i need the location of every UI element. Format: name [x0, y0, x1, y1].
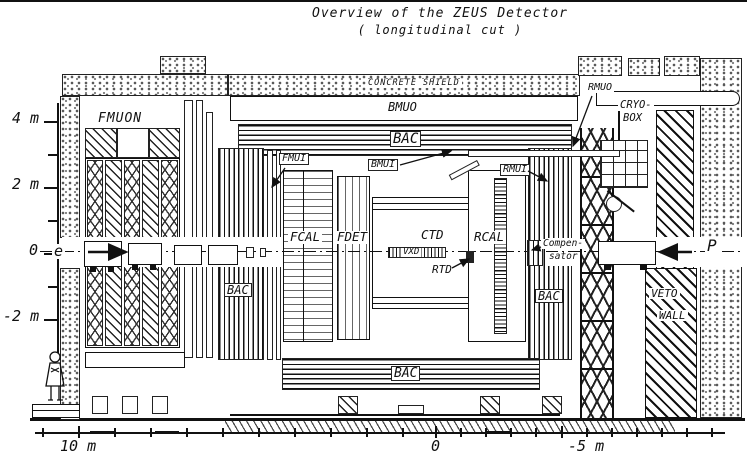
y-tick-neg2m: [44, 319, 58, 321]
ground-hatch: [225, 421, 675, 432]
beam-magnet: [128, 243, 162, 265]
concrete-shield-label: CONCRETE SHIELD: [366, 79, 462, 88]
beam-fitting: [260, 248, 266, 257]
veto-wall-label-line1: VETO: [649, 288, 680, 299]
fmuon-platform: [85, 352, 185, 368]
fmuon-label: FMUON: [96, 112, 144, 125]
pedestal-line: [32, 410, 80, 411]
ctd-inner-line: [373, 209, 478, 210]
truss-chord: [580, 368, 614, 370]
title-line1: Overview of the ZEUS Detector: [250, 6, 630, 21]
x-label-neg5m: -5 m: [566, 439, 606, 454]
fmuon-endcap-bar: [206, 112, 213, 358]
cryo-pipe: [618, 106, 620, 140]
ctd-label: CTD: [419, 229, 446, 242]
bac-top-label: BAC: [390, 131, 421, 147]
fmuon-header-block: [117, 128, 149, 158]
bmui-label: BMUI: [368, 159, 398, 171]
fmuon-header-block: [85, 128, 117, 158]
y-tick-1m: [48, 220, 58, 222]
x-tick: [661, 428, 663, 437]
y-label-2m: 2 m: [10, 177, 41, 192]
x-tick: [586, 428, 588, 437]
x-tick: [114, 428, 116, 437]
x-tick: [460, 428, 462, 437]
x-tick: [535, 428, 537, 437]
concrete-block-top-right-2: [628, 58, 660, 76]
concrete-wall-left-upper: [60, 96, 80, 238]
rmui-label: RMUI: [500, 164, 530, 176]
magnet-foot: [150, 265, 156, 270]
cryo-box-label-line2: BOX: [621, 113, 644, 124]
x-scale-bold-segment: [155, 431, 179, 434]
magnet-foot: [604, 265, 611, 270]
x-tick: [611, 428, 613, 437]
x-tick: [636, 428, 638, 437]
fcal-divider: [303, 170, 304, 342]
truss-chord: [580, 272, 614, 274]
rcal-ladder-column: [494, 178, 507, 334]
y-tick-neg1m: [48, 286, 58, 288]
carriage-wheel: [122, 396, 138, 414]
compensator-label-line2: sator: [547, 252, 580, 262]
vxd-label: VXD: [401, 248, 421, 257]
ctd-inner-line: [373, 297, 478, 298]
x-tick: [258, 428, 260, 437]
bac-left-label: BAC: [224, 283, 252, 297]
rcal-label: RCAL: [472, 231, 506, 244]
bac-right-label: BAC: [535, 289, 563, 303]
cryo-box-structure: [600, 140, 648, 188]
x-tick: [150, 428, 152, 437]
x-tick: [42, 428, 44, 437]
beam-magnet: [208, 245, 238, 265]
beam-magnet: [174, 245, 202, 265]
beam-magnet: [84, 241, 122, 267]
x-tick: [222, 428, 224, 437]
concrete-block-top-right-3: [664, 56, 700, 76]
x-tick: [402, 428, 404, 437]
y-label-neg2m: -2 m: [1, 309, 41, 324]
cryo-box-label-line1: CRYO-: [618, 100, 654, 111]
x-tick: [186, 428, 188, 437]
figure-top-border: [0, 0, 747, 2]
y-tick-3m: [48, 154, 58, 156]
title-line2: ( longitudinal cut ): [250, 23, 630, 37]
ctd-inner-line: [373, 303, 478, 304]
rtd-label: RTD: [430, 264, 454, 275]
concrete-band-top-left: [62, 74, 228, 96]
beam-magnet-right: [598, 241, 656, 265]
fmuon-endcap-bar: [196, 100, 203, 358]
fmuon-header-block: [149, 128, 180, 158]
bac-bottom-label: BAC: [391, 366, 420, 381]
x-axis-line: [35, 432, 725, 434]
rtd-element: [466, 251, 474, 263]
x-label-0: 0: [429, 439, 442, 454]
scale-person-figure: [36, 350, 76, 408]
fmuon-endcap-bar: [184, 100, 193, 358]
x-scale-bold-segment: [487, 431, 511, 434]
x-label-10m: 10 m: [58, 439, 98, 454]
y-axis-line: [57, 103, 59, 353]
rmuo-label: RMUO: [586, 83, 614, 93]
jack-element: [398, 405, 424, 414]
x-tick: [366, 428, 368, 437]
concrete-block-top-right-1: [578, 56, 622, 76]
x-tick: [711, 428, 713, 437]
figure-title: Overview of the ZEUS Detector ( longitud…: [250, 6, 630, 37]
ctd-inner-line: [373, 203, 478, 204]
y-tick-4m: [44, 121, 58, 123]
y-label-0: 0: [27, 243, 40, 258]
fcal-label: FCAL: [288, 231, 322, 244]
x-tick: [294, 428, 296, 437]
magnet-foot: [90, 267, 96, 272]
x-scale-bold-segment: [90, 431, 114, 434]
rail-line: [230, 414, 560, 416]
rear-pipe: [468, 150, 620, 157]
support-foot: [542, 396, 562, 414]
support-foot: [338, 396, 358, 414]
y-label-4m: 4 m: [10, 111, 41, 126]
bmuo-label: BMUO: [386, 101, 419, 113]
carriage-wheel: [152, 396, 168, 414]
x-tick: [330, 428, 332, 437]
fdet-label: FDET: [335, 231, 369, 244]
y-tick-2m: [44, 187, 58, 189]
compensator-label-line1: Compen-: [541, 239, 585, 249]
beam-fitting: [246, 247, 254, 258]
x-tick: [686, 428, 688, 437]
truss-chord: [580, 224, 614, 226]
veto-wall-label-line2: WALL: [657, 310, 688, 321]
electron-beam-label: e: [52, 244, 65, 259]
magnet-foot: [640, 265, 647, 270]
zeus-detector-diagram: Overview of the ZEUS Detector ( longitud…: [0, 0, 747, 464]
x-tick-neg5m: [561, 426, 563, 438]
concrete-block-top-left: [160, 56, 206, 74]
fdet-block: [337, 176, 370, 340]
fmui-label: FMUI: [279, 153, 309, 165]
proton-beam-label: P: [705, 238, 719, 254]
truss-chord: [580, 320, 614, 322]
support-foot: [480, 396, 500, 414]
carriage-wheel: [92, 396, 108, 414]
magnet-foot: [132, 265, 138, 270]
magnet-foot: [108, 267, 114, 272]
fcal-block: [283, 170, 333, 342]
